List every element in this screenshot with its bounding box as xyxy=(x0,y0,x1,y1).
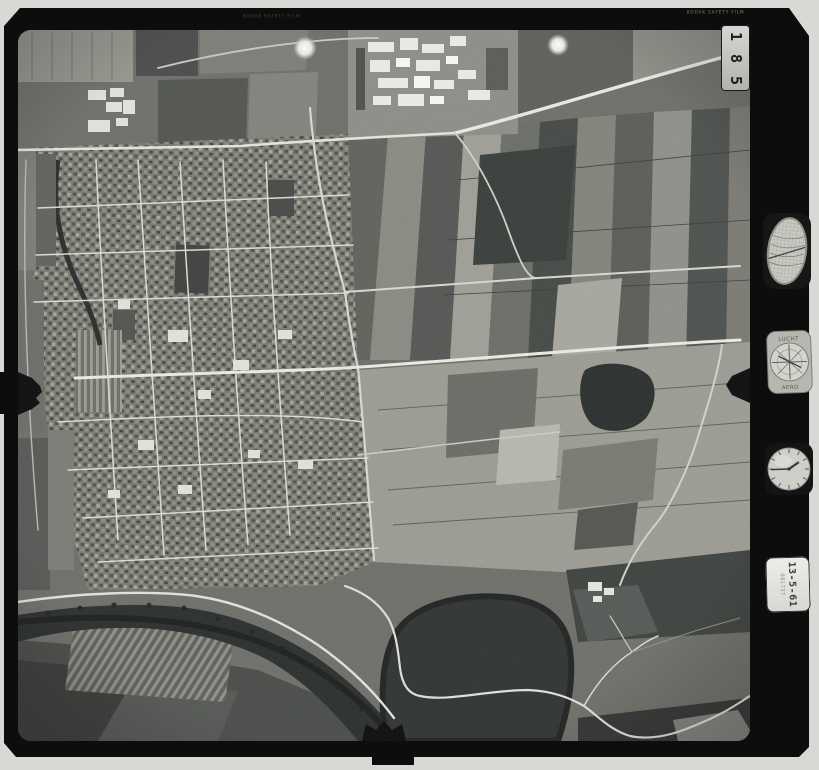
aerial-photograph xyxy=(18,30,750,741)
altimeter-instrument: LUCHT AERO xyxy=(766,329,813,396)
film-code: 881737 xyxy=(779,574,785,596)
clock-instrument xyxy=(765,443,813,495)
statoscope-instrument xyxy=(762,212,812,290)
frame-number-digit: 1 xyxy=(728,31,743,40)
dial-top-label: LUCHT xyxy=(778,336,799,343)
film-grain xyxy=(18,30,750,741)
film-edge-print-left: KODAK SAFETY FILM xyxy=(243,14,323,21)
aerial-photo-graphic xyxy=(18,30,750,741)
film-edge-print-right: KODAK SAFETY FILM xyxy=(687,10,767,17)
altimeter-dial-face: LUCHT AERO xyxy=(766,329,813,396)
frame-number-digit: 5 xyxy=(728,75,743,84)
film-edge-tab-bottom xyxy=(372,752,414,765)
mission-date: 13-5-61 xyxy=(786,561,798,607)
dial-bottom-label: AERO xyxy=(782,385,800,392)
film-edge-tab-left xyxy=(0,372,9,414)
data-card: 13-5-61 881737 xyxy=(765,556,810,612)
frame-number-digit: 8 xyxy=(728,53,743,62)
clock-face xyxy=(765,443,813,495)
clock-minute-hand xyxy=(771,469,789,470)
frame-number-strip: 1 8 5 xyxy=(721,25,750,91)
statoscope-dial xyxy=(762,212,812,290)
